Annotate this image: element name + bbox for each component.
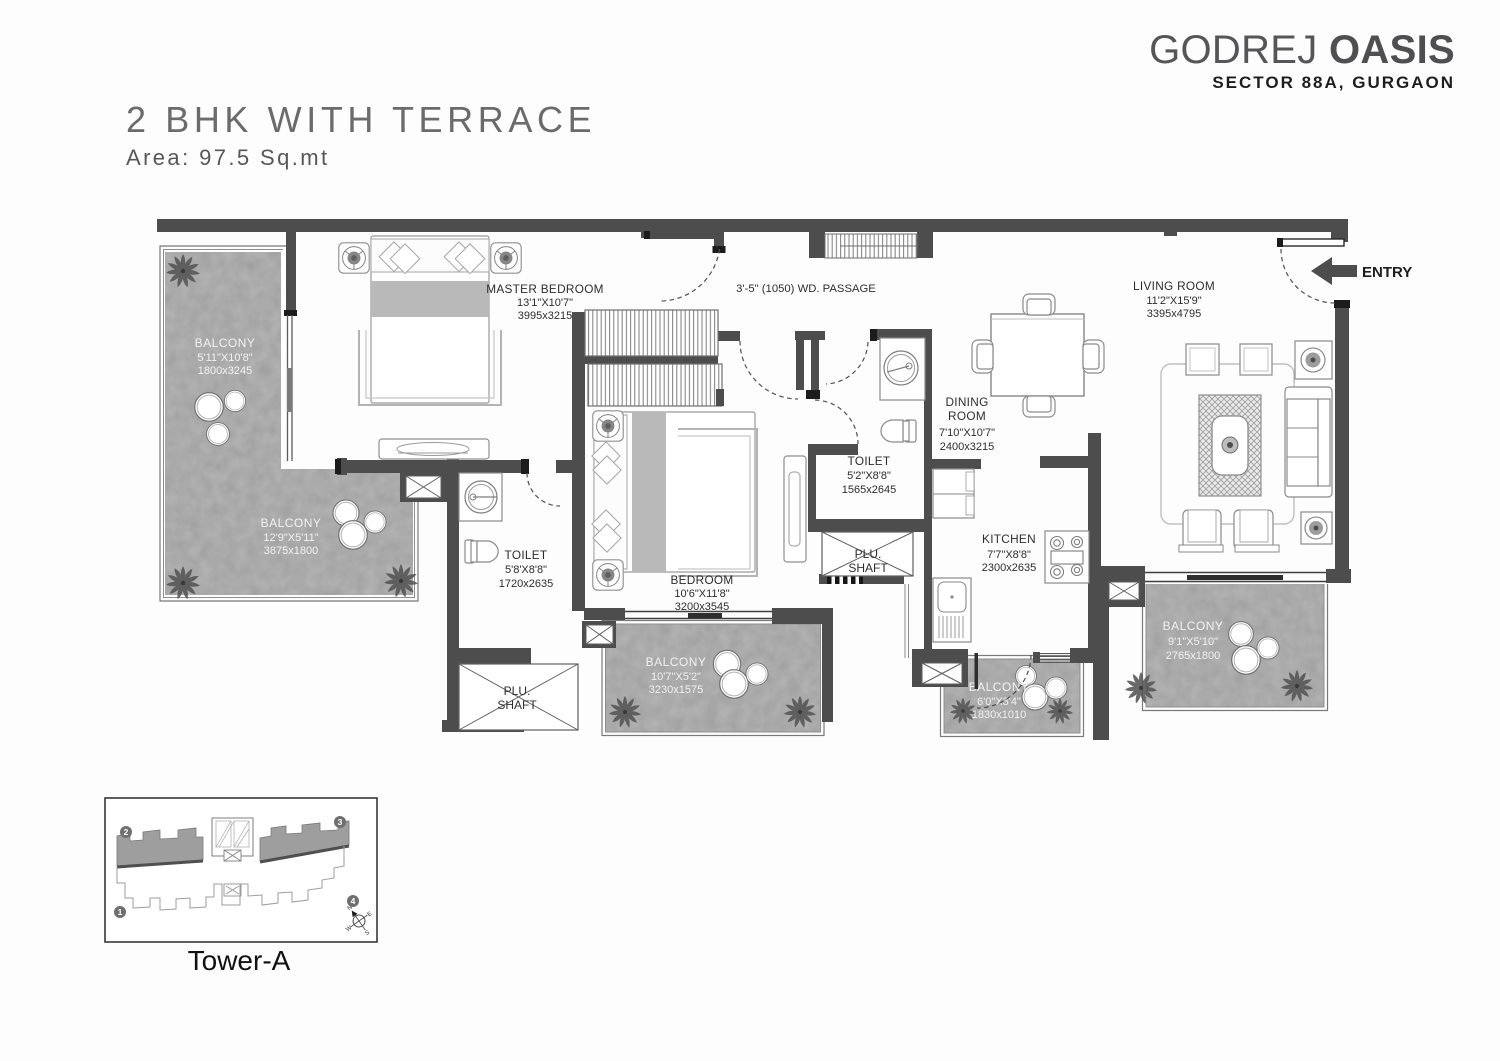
- svg-text:1830x1010: 1830x1010: [972, 709, 1026, 721]
- svg-text:11'2"X15'9": 11'2"X15'9": [1146, 295, 1201, 307]
- svg-text:3995x3215: 3995x3215: [518, 310, 572, 322]
- svg-text:2765x1800: 2765x1800: [1166, 650, 1220, 662]
- svg-text:5'2"X8'8": 5'2"X8'8": [847, 470, 891, 482]
- svg-text:Tower-A: Tower-A: [188, 945, 291, 976]
- svg-text:1565x2645: 1565x2645: [842, 484, 896, 496]
- svg-text:2: 2: [124, 827, 129, 837]
- svg-text:LIVING ROOM: LIVING ROOM: [1133, 279, 1215, 293]
- svg-text:GODREJ OASIS: GODREJ OASIS: [1149, 28, 1455, 72]
- svg-text:SECTOR 88A, GURGAON: SECTOR 88A, GURGAON: [1212, 73, 1455, 92]
- svg-text:Area: 97.5 Sq.mt: Area: 97.5 Sq.mt: [126, 145, 330, 170]
- svg-text:PLU.: PLU.: [504, 684, 531, 698]
- svg-text:DINING: DINING: [945, 395, 988, 409]
- svg-text:TOILET: TOILET: [848, 454, 891, 468]
- svg-text:BEDROOM: BEDROOM: [670, 573, 733, 587]
- svg-text:3: 3: [338, 817, 343, 827]
- svg-text:2300x2635: 2300x2635: [982, 562, 1036, 574]
- svg-text:5'8'X8'8": 5'8'X8'8": [505, 564, 547, 576]
- svg-text:MASTER BEDROOM: MASTER BEDROOM: [486, 282, 604, 296]
- svg-text:10'6"X11'8": 10'6"X11'8": [674, 588, 729, 600]
- svg-text:12'9"X5'11": 12'9"X5'11": [263, 532, 318, 544]
- svg-text:TOILET: TOILET: [505, 548, 548, 562]
- svg-text:BALCONY: BALCONY: [1163, 619, 1224, 633]
- svg-text:PLU.: PLU.: [855, 547, 882, 561]
- svg-text:3'-5" (1050) WD. PASSAGE: 3'-5" (1050) WD. PASSAGE: [736, 283, 876, 295]
- svg-text:7'10"X10'7": 7'10"X10'7": [939, 427, 995, 439]
- svg-text:SHAFT: SHAFT: [497, 698, 537, 712]
- svg-text:4: 4: [351, 896, 356, 906]
- svg-text:3200x3545: 3200x3545: [675, 601, 729, 613]
- svg-text:7'7"X8'8": 7'7"X8'8": [987, 549, 1031, 561]
- svg-text:10'7"X5'2": 10'7"X5'2": [651, 671, 701, 683]
- svg-text:BALCONY: BALCONY: [195, 336, 256, 350]
- svg-text:5'11"X10'8": 5'11"X10'8": [197, 352, 252, 364]
- svg-text:3395x4795: 3395x4795: [1147, 308, 1201, 320]
- svg-text:1800x3245: 1800x3245: [198, 365, 252, 377]
- svg-text:BALCONY: BALCONY: [646, 655, 707, 669]
- svg-text:1: 1: [118, 907, 123, 917]
- svg-text:ROOM: ROOM: [948, 409, 986, 423]
- svg-text:SHAFT: SHAFT: [848, 561, 888, 575]
- svg-text:ENTRY: ENTRY: [1362, 264, 1412, 281]
- svg-text:6'0"X3'4": 6'0"X3'4": [977, 696, 1021, 708]
- svg-text:3875x1800: 3875x1800: [264, 545, 318, 557]
- svg-text:1720x2635: 1720x2635: [499, 578, 553, 590]
- svg-text:KITCHEN: KITCHEN: [982, 532, 1036, 546]
- svg-text:2 BHK WITH TERRACE: 2 BHK WITH TERRACE: [126, 99, 596, 140]
- svg-text:3230x1575: 3230x1575: [649, 684, 703, 696]
- svg-text:2400x3215: 2400x3215: [940, 441, 994, 453]
- svg-text:BALCONY: BALCONY: [261, 516, 322, 530]
- svg-text:9'1"X5'10": 9'1"X5'10": [1168, 636, 1218, 648]
- svg-text:13'1"X10'7": 13'1"X10'7": [517, 297, 573, 309]
